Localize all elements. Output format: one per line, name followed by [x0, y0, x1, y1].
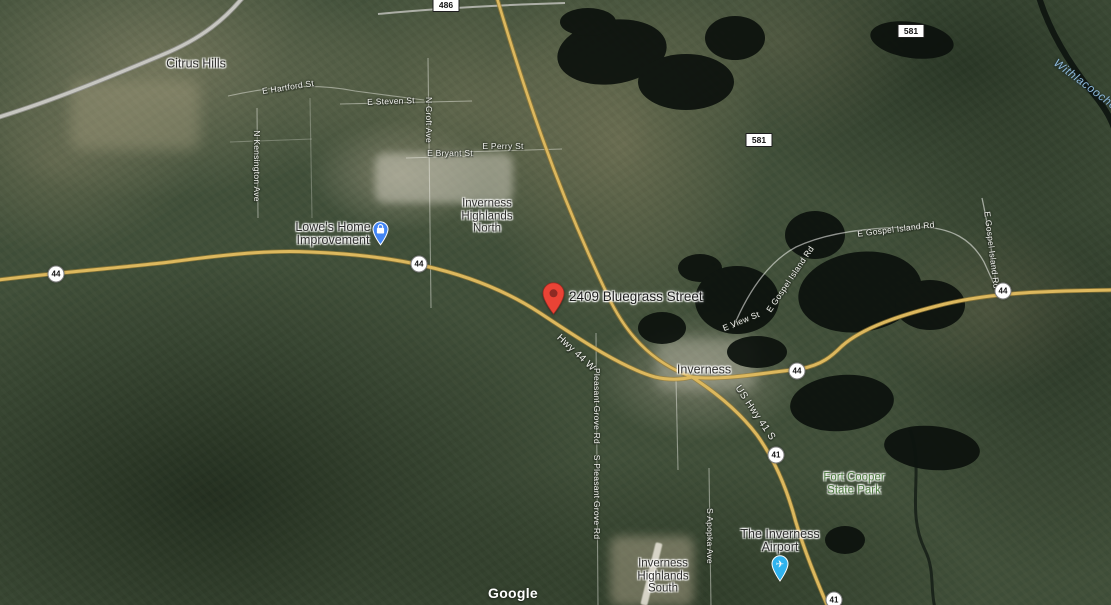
- marker-address-label[interactable]: 2409 Bluegrass Street: [569, 289, 703, 304]
- route-shield-581-b: 581: [746, 133, 773, 147]
- street-label-e-bryant-st: E Bryant St: [427, 148, 473, 158]
- poi-line: Airport: [762, 541, 799, 554]
- place-line: Inverness: [677, 364, 731, 377]
- place-label-inverness-highlands-north[interactable]: Inverness Highlands North: [461, 197, 512, 235]
- place-label-inverness[interactable]: Inverness: [677, 364, 731, 377]
- place-line: Inverness: [638, 557, 688, 570]
- svg-text:✈: ✈: [776, 560, 784, 571]
- street-label-n-croft-ave: N Croft Ave: [424, 97, 434, 143]
- red-map-pin-icon[interactable]: [542, 282, 565, 320]
- place-line: Highlands: [461, 210, 512, 223]
- place-line: Fort Cooper: [823, 472, 884, 485]
- street-label-e-perry-st: E Perry St: [482, 141, 523, 151]
- street-label-s-apopka-ave: S Apopka Ave: [705, 508, 715, 564]
- place-line: South: [648, 582, 678, 595]
- place-line: North: [473, 222, 501, 235]
- airplane-pin-icon[interactable]: ✈: [771, 555, 789, 587]
- place-line: Citrus Hills: [166, 58, 226, 71]
- poi-label-lowes-home-improvement[interactable]: Lowe's Home Improvement: [295, 221, 370, 247]
- place-line: Inverness: [462, 197, 512, 210]
- route-shield-581-a: 581: [898, 24, 925, 38]
- place-label-citrus-hills[interactable]: Citrus Hills: [166, 58, 226, 71]
- place-label-inverness-highlands-south[interactable]: Inverness Highlands South: [637, 557, 688, 595]
- route-shield-41-a: 41: [768, 447, 785, 464]
- minor-roads-group: [228, 58, 711, 605]
- place-line: Highlands: [637, 570, 688, 583]
- poi-label-inverness-airport[interactable]: The Inverness Airport: [740, 528, 819, 554]
- google-logo: Google: [488, 585, 538, 601]
- hwy-44-east-path: [692, 290, 1111, 378]
- place-label-fort-cooper-state-park[interactable]: Fort Cooper State Park: [823, 472, 884, 497]
- route-shield-44-b: 44: [411, 256, 428, 273]
- street-label-pleasant-grove-rd: Pleasant Grove Rd: [592, 368, 602, 444]
- shopping-bag-pin-icon[interactable]: [372, 221, 389, 251]
- route-shield-486: 486: [433, 0, 460, 12]
- hwy-from-north-path: [497, 0, 692, 377]
- route-shield-44-a: 44: [48, 266, 65, 283]
- route-shield-44-d: 44: [995, 283, 1012, 300]
- map-canvas[interactable]: E Hartford St E Steven St N Croft Ave E …: [0, 0, 1111, 605]
- gray-highway-group: [0, 0, 565, 118]
- street-label-n-kensington-ave: N Kensington Ave: [252, 130, 262, 201]
- route-shield-44-c: 44: [789, 363, 806, 380]
- street-label-e-steven-st: E Steven St: [367, 95, 415, 107]
- street-label-s-pleasant-grove-rd: S Pleasant Grove Rd: [592, 455, 602, 540]
- route-shield-41-b: 41: [826, 592, 843, 605]
- poi-line: Improvement: [297, 234, 370, 247]
- place-line: State Park: [827, 484, 881, 497]
